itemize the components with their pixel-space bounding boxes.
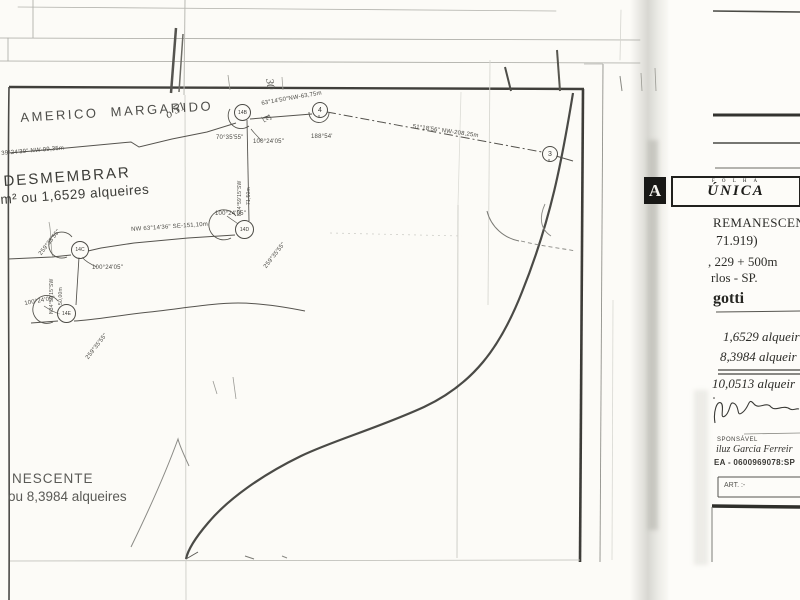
logo-stamp-letter: A: [649, 181, 661, 201]
survey-marker-label: 3: [548, 151, 552, 158]
art-label: ART. :-: [724, 482, 745, 489]
km-line: , 229 + 500m: [708, 255, 777, 268]
creek-strokes: [131, 204, 576, 547]
folha-value: ÚNICA: [673, 183, 799, 200]
bearing-label: 70°35'55": [216, 135, 244, 141]
survey-marker-4: 4: [312, 102, 328, 118]
survey-marker-label: 14B: [238, 110, 247, 116]
bearing-label: 71,50m: [247, 187, 252, 205]
owner-surname: gotti: [713, 291, 744, 307]
survey-marker-14C: 14C: [71, 241, 89, 259]
survey-marker-14E: 14E: [57, 304, 76, 323]
bearing-label: 50,00m: [59, 287, 64, 305]
bearing-label: 100°24'05": [253, 139, 284, 145]
survey-marker-label: 14C: [75, 247, 84, 253]
parcel-remanescente-area: ou 8,3984 alqueires: [8, 490, 127, 504]
survey-marker-label: 4: [318, 107, 322, 114]
area-total: 10,0513 alqueir: [712, 377, 795, 390]
map-frame: [8, 64, 613, 600]
survey-marker-3: 3: [542, 146, 558, 162]
survey-marker-14D: 14D: [235, 220, 254, 239]
bearing-label: 188°54': [311, 134, 333, 140]
survey-marker-14B: 14B: [234, 104, 251, 121]
title-block-rulings: [712, 11, 800, 562]
responsavel-name: iluz Garcia Ferreir: [716, 445, 792, 455]
bearing-label: 100°24'05": [92, 265, 123, 271]
area-value-1: 1,6529 alqueir: [723, 330, 800, 343]
remanescente-line: REMANESCENTE: [713, 216, 800, 229]
responsavel-label: SPONSÁVEL: [717, 437, 758, 443]
sheet-rulings: [0, 0, 640, 63]
bearing-label: 100°24'05": [215, 211, 246, 217]
road-curve: [186, 93, 573, 559]
south-boundary: [74, 303, 305, 321]
signature: [713, 397, 799, 423]
logo-stamp: A: [644, 177, 666, 204]
crea-registration: EA - 0600969078:SP: [714, 459, 795, 467]
folha-unica-box: F O L H A ÚNICA: [671, 176, 800, 207]
matricula-number: 71.919): [716, 234, 758, 248]
city-line: rlos - SP.: [711, 271, 758, 284]
parcel-remanescente-label: NESCENTE: [12, 472, 94, 486]
marker-dots: [318, 115, 550, 161]
area-value-2: 8,3984 alqueir: [720, 350, 797, 363]
scanned-survey-plat-document: AMERICO MARGARIDO DESMEMBRAR m² ou 1,652…: [0, 0, 800, 600]
survey-marker-label: 14D: [240, 227, 249, 233]
survey-marker-label: 14E: [62, 311, 71, 317]
map-linework: [0, 0, 800, 600]
handwriting-note: 30: [263, 78, 275, 90]
